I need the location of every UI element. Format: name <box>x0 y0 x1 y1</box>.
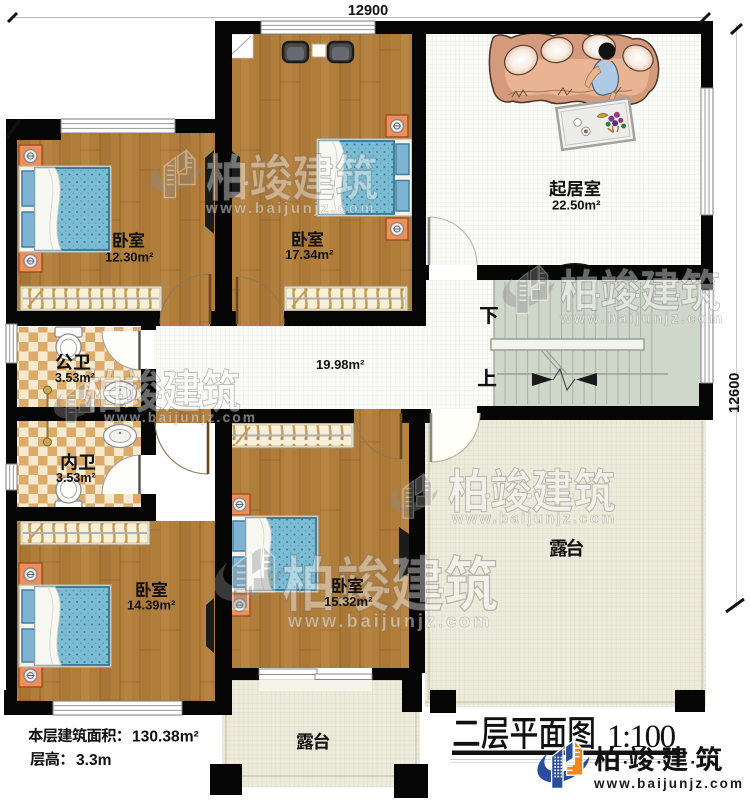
svg-text:www.baijunjz.com: www.baijunjz.com <box>287 611 492 631</box>
svg-text:www.baijunjz.com: www.baijunjz.com <box>559 311 725 327</box>
svg-text:19.98m²: 19.98m² <box>316 357 365 372</box>
svg-text:3.3m: 3.3m <box>76 752 112 769</box>
svg-text:3.53m²: 3.53m² <box>55 371 95 385</box>
svg-text:www.baijunjz.com: www.baijunjz.com <box>451 511 617 527</box>
svg-text:12900: 12900 <box>348 3 388 19</box>
svg-text:12600: 12600 <box>727 373 743 413</box>
svg-text:www.baijunjz.com: www.baijunjz.com <box>593 776 744 791</box>
svg-text:3.53m²: 3.53m² <box>56 471 96 485</box>
svg-text:22.50m²: 22.50m² <box>552 198 601 213</box>
svg-text:www.baijunjz.com: www.baijunjz.com <box>103 410 257 425</box>
svg-text:15.32m²: 15.32m² <box>324 594 373 609</box>
svg-text:12.30m²: 12.30m² <box>105 250 154 265</box>
svg-text:17.34m²: 17.34m² <box>285 247 334 262</box>
svg-text:14.39m²: 14.39m² <box>127 598 176 613</box>
svg-text:130.38m²: 130.38m² <box>132 729 199 746</box>
svg-text:www.baijunjz.com: www.baijunjz.com <box>205 200 376 217</box>
